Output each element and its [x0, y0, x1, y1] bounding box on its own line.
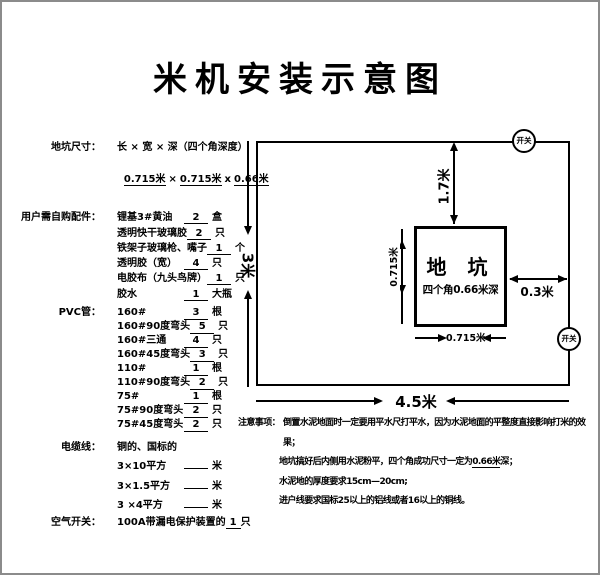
dim-label-pit-height: 0.715米	[386, 244, 400, 290]
pit-size-dimensions: 0.715米×0.715米x0.66米	[96, 159, 242, 196]
item-name: 锂基3#黄油	[106, 210, 184, 225]
item-name: 110#90度弯头	[106, 376, 190, 390]
item-unit: 只	[214, 376, 248, 390]
note-text: 地坑搞好后内侧用水泥粉平，四个角成功尺寸一定为	[279, 457, 472, 467]
arrow-right-icon	[558, 275, 567, 283]
item-qty: 2	[184, 418, 208, 432]
item-qty: 3	[190, 348, 214, 362]
multiply-sign: ×	[166, 174, 180, 185]
item-name: 110#	[106, 362, 184, 376]
note-underlined-value: 0.66米	[472, 457, 500, 468]
item-name: 75#45度弯头	[106, 418, 184, 432]
item-unit: 盒	[208, 210, 242, 225]
notes-section: 注意事项： 倒置水泥地面时一定要用平水尺打平水，因为水泥地面的平整度直接影响打米…	[238, 414, 600, 512]
air-switch-spec: 100A带漏电保护装置的	[106, 515, 226, 530]
item-unit: 只	[214, 348, 248, 362]
item-qty: 4	[184, 334, 208, 348]
dim-line	[415, 337, 440, 339]
notes-label: 注意事项：	[238, 414, 283, 453]
item-name: 铁架子玻璃枪、嘴子	[106, 241, 207, 256]
item-unit: 米	[208, 479, 242, 494]
item-qty	[184, 494, 208, 508]
list-item: 透明胶（宽） 4 只	[18, 256, 242, 271]
item-unit: 只	[211, 226, 245, 241]
pit-size-label: 地坑尺寸：	[18, 140, 106, 155]
pit-size-row: 地坑尺寸： 长 × 宽 × 深（四个角深度）	[18, 140, 242, 155]
arrow-right-icon	[374, 397, 383, 405]
item-qty: 1	[184, 362, 208, 376]
cable-spec: 铜的、国标的	[106, 440, 184, 455]
arrow-down-icon	[244, 226, 252, 235]
item-name: 透明快干玻璃胶	[106, 226, 187, 241]
item-qty: 2	[187, 226, 211, 240]
item-unit: 米	[208, 459, 242, 474]
item-name: 3×10平方	[106, 459, 184, 474]
power-switch-top-icon: 开关	[512, 129, 536, 153]
arrow-left-icon	[509, 275, 518, 283]
item-name: 胶水	[106, 287, 184, 302]
list-item: 胶水 1 大瓶	[18, 287, 242, 302]
pit-size-formula: 长 × 宽 × 深（四个角深度）	[106, 140, 248, 155]
item-qty: 4	[184, 256, 208, 270]
list-item: 3×1.5平方 米	[18, 475, 242, 494]
item-qty	[184, 475, 208, 489]
dim-line	[491, 337, 506, 339]
dim-label-1-7m: 1.7米	[434, 165, 453, 209]
item-name: 电胶布（九头鸟牌）	[106, 271, 207, 286]
list-item: PVC管： 160# 3 根	[18, 306, 242, 320]
item-unit: 只	[241, 515, 251, 530]
item-name: 160#90度弯头	[106, 320, 190, 334]
switch-label: 开关	[562, 334, 577, 343]
item-qty: 3	[184, 306, 208, 320]
item-unit: 只	[208, 404, 242, 418]
item-qty: 2	[190, 376, 214, 390]
list-item: 160#45度弯头 3 只	[18, 348, 242, 362]
cable-section: 电缆线： 铜的、国标的 3×10平方 米 3×1.5平方 米 3 ×4平方	[18, 437, 242, 513]
pit-dim-width: 0.715米	[180, 174, 222, 186]
pvc-section: PVC管： 160# 3 根 160#90度弯头 5 只 160#三通 4 只 …	[18, 306, 242, 432]
page-title: 米机安装示意图	[2, 52, 598, 101]
pit-box: 地 坑 四个角0.66米深	[414, 226, 507, 327]
list-item: 3×10平方 米	[18, 455, 242, 474]
list-item: 110#90度弯头 2 只	[18, 376, 242, 390]
item-unit: 根	[208, 390, 242, 404]
spacer	[184, 437, 208, 450]
list-item: 3 ×4平方 米	[18, 494, 242, 513]
item-name: 3×1.5平方	[106, 479, 184, 494]
pit-dim-length: 0.715米	[124, 174, 166, 186]
item-qty	[184, 455, 208, 469]
item-unit: 根	[208, 362, 242, 376]
dim-line	[247, 141, 249, 228]
arrow-up-icon	[450, 142, 458, 151]
list-item: 用户需自购配件： 锂基3#黄油 2 盒	[18, 210, 242, 225]
arrow-left-icon	[446, 397, 455, 405]
list-item: 110# 1 根	[18, 362, 242, 376]
list-item: 75# 1 根	[18, 390, 242, 404]
cable-label: 电缆线：	[18, 440, 106, 455]
note-line: 进户线要求国标25以上的铝线或者16以上的铜线。	[279, 492, 600, 512]
pit-title: 地 坑	[417, 251, 504, 280]
installation-sheet: 米机安装示意图 地坑尺寸： 长 × 宽 × 深（四个角深度） 0.715米×0.…	[0, 0, 600, 575]
item-qty: 1	[207, 271, 231, 285]
list-item: 75#45度弯头 2 只	[18, 418, 242, 432]
list-item: 160#三通 4 只	[18, 334, 242, 348]
arrow-down-icon	[450, 215, 458, 224]
materials-panel: 地坑尺寸： 长 × 宽 × 深（四个角深度） 0.715米×0.715米x0.6…	[18, 140, 242, 530]
item-unit: 只	[208, 334, 242, 348]
item-qty: 1	[226, 515, 241, 529]
pit-size-section: 地坑尺寸： 长 × 宽 × 深（四个角深度） 0.715米×0.715米x0.6…	[18, 140, 242, 196]
dim-line	[453, 144, 455, 224]
item-qty: 5	[190, 320, 214, 334]
note-line: 地坑搞好后内侧用水泥粉平，四个角成功尺寸一定为0.66米深；	[279, 453, 600, 473]
list-item: 铁架子玻璃枪、嘴子 1 个	[18, 241, 242, 256]
dim-line	[256, 400, 375, 402]
switch-label: 开关	[517, 136, 532, 145]
note-text: 深；	[500, 457, 517, 467]
item-unit: 根	[208, 306, 242, 320]
air-switch-row: 空气开关： 100A带漏电保护装置的 1 只	[18, 515, 242, 530]
item-name: 160#	[106, 306, 184, 320]
pit-depth-note: 四个角0.66米深	[417, 282, 504, 297]
dim-label-0-3m: 0.3米	[517, 283, 557, 300]
item-name: 160#45度弯头	[106, 348, 190, 362]
item-qty: 2	[184, 210, 208, 224]
item-unit: 米	[208, 498, 242, 513]
multiply-sign: x	[222, 174, 234, 185]
dim-label-pit-width: 0.715米	[446, 330, 482, 344]
air-switch-label: 空气开关：	[18, 515, 106, 530]
dim-line	[455, 400, 569, 402]
item-name: 3 ×4平方	[106, 498, 184, 513]
item-qty: 2	[184, 404, 208, 418]
parts-section: 用户需自购配件： 锂基3#黄油 2 盒 透明快干玻璃胶 2 只 铁架子玻璃枪、嘴…	[18, 210, 242, 302]
item-qty: 1	[184, 390, 208, 404]
item-name: 75#	[106, 390, 184, 404]
power-switch-right-icon: 开关	[557, 327, 581, 351]
dim-label-room-height: 3米	[238, 249, 259, 283]
pvc-label: PVC管：	[18, 306, 106, 320]
item-unit: 只	[208, 418, 242, 432]
item-name: 75#90度弯头	[106, 404, 184, 418]
item-qty: 1	[184, 287, 208, 301]
list-item: 75#90度弯头 2 只	[18, 404, 242, 418]
parts-label: 用户需自购配件：	[18, 210, 106, 225]
room-outline	[256, 141, 570, 386]
list-item: 电胶布（九头鸟牌） 1 只	[18, 271, 242, 286]
list-item: 透明快干玻璃胶 2 只	[18, 226, 242, 241]
item-name: 160#三通	[106, 334, 184, 348]
dim-line	[247, 298, 249, 387]
item-unit: 大瓶	[208, 287, 242, 302]
note-text: 倒置水泥地面时一定要用平水尺打平水，因为水泥地面的平整度直接影响打米的效果；	[283, 414, 600, 453]
note-line: 水泥地的厚度要求15cm—20cm;	[279, 473, 600, 493]
list-item: 160#90度弯头 5 只	[18, 320, 242, 334]
item-qty: 1	[207, 241, 231, 255]
arrow-left-icon	[482, 334, 491, 342]
dim-label-room-width: 4.5米	[388, 391, 444, 412]
list-item: 电缆线： 铜的、国标的	[18, 437, 242, 455]
note-line: 注意事项： 倒置水泥地面时一定要用平水尺打平水，因为水泥地面的平整度直接影响打米…	[238, 414, 600, 453]
item-unit: 只	[214, 320, 248, 334]
item-name: 透明胶（宽）	[106, 256, 184, 271]
